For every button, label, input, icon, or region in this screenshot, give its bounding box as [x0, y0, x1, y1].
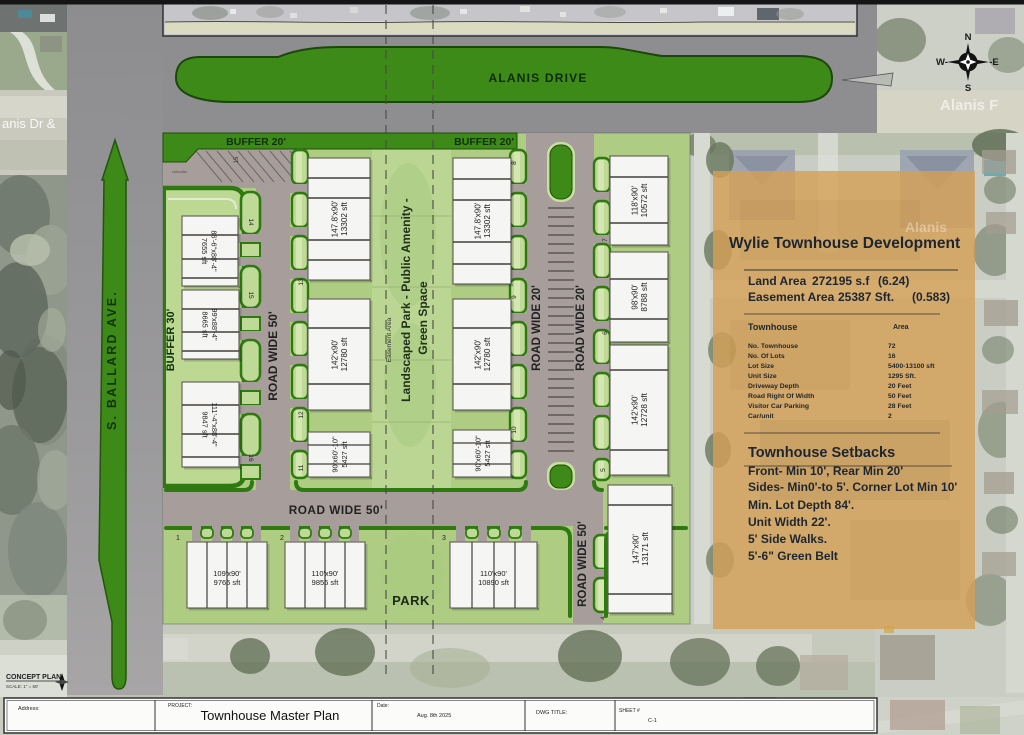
svg-text:13302 sft: 13302 sft — [483, 203, 492, 237]
svg-text:C-1: C-1 — [648, 718, 657, 724]
svg-text:ROAD WIDE 50': ROAD WIDE 50' — [289, 503, 384, 517]
svg-text:15: 15 — [247, 291, 254, 299]
svg-text:9847 sft: 9847 sft — [201, 411, 210, 437]
svg-text:13: 13 — [298, 278, 305, 286]
svg-text:Land Area: Land Area — [748, 274, 807, 288]
svg-text:(0.583): (0.583) — [912, 290, 950, 304]
svg-text:ROAD WIDE 20': ROAD WIDE 20' — [575, 285, 587, 371]
svg-text:Sides- Min0'-to 5'. Corner: Sides- Min0'-to 5'. Corner Lot Min 10' — [748, 480, 957, 494]
svg-text:16: 16 — [247, 454, 254, 462]
svg-text:20 Feet: 20 Feet — [888, 383, 912, 390]
svg-text:5' Side Walks.: 5' Side Walks. — [748, 532, 827, 546]
svg-text:ALANIS DRIVE: ALANIS DRIVE — [488, 71, 587, 85]
svg-text:9766 sft: 9766 sft — [214, 578, 242, 587]
svg-text:Alanis: Alanis — [905, 219, 947, 235]
svg-text:5'-6" Green Belt: 5'-6" Green Belt — [748, 549, 838, 563]
svg-text:12780 sft: 12780 sft — [340, 337, 349, 371]
svg-text:DWG TITLE:: DWG TITLE: — [536, 710, 568, 716]
svg-text:Green Space: Green Space — [416, 281, 430, 355]
svg-text:(6.24): (6.24) — [878, 274, 909, 288]
svg-text:8788 sft: 8788 sft — [640, 282, 649, 312]
svg-text:3: 3 — [442, 535, 446, 542]
svg-text:Visitor Car Parking: Visitor Car Parking — [748, 403, 809, 410]
svg-text:Townhouse: Townhouse — [748, 322, 797, 332]
svg-text:12: 12 — [298, 411, 305, 419]
svg-text:9: 9 — [511, 295, 518, 299]
svg-text:No. Of Lots: No. Of Lots — [748, 353, 785, 360]
svg-text:110'x90': 110'x90' — [312, 569, 339, 578]
svg-text:12728 sft: 12728 sft — [640, 392, 649, 426]
svg-text:142'x90': 142'x90' — [631, 395, 640, 425]
svg-text:Area: Area — [893, 324, 909, 331]
svg-text:anis Dr &: anis Dr & — [2, 116, 56, 131]
svg-text:1295 Sft.: 1295 Sft. — [888, 373, 916, 380]
svg-text:13171 sft: 13171 sft — [641, 531, 650, 565]
svg-text:S: S — [965, 83, 971, 94]
svg-text:111'-4"x88'-4": 111'-4"x88'-4" — [210, 402, 219, 447]
svg-text:ROAD WIDE 50': ROAD WIDE 50' — [266, 311, 280, 401]
svg-text:BUFFER 20': BUFFER 20' — [226, 136, 286, 148]
svg-text:Unit Width 22'.: Unit Width 22'. — [748, 515, 831, 529]
svg-text:147.8'x90': 147.8'x90' — [331, 200, 340, 237]
svg-text:Alanis F: Alanis F — [940, 97, 998, 114]
svg-text:Lot Size: Lot Size — [748, 363, 774, 370]
svg-text:No. Townhouse: No. Townhouse — [748, 343, 798, 350]
svg-text:W-: W- — [936, 57, 948, 68]
svg-text:2: 2 — [888, 413, 892, 420]
svg-text:8665 sft: 8665 sft — [201, 311, 210, 337]
svg-text:10890 sft: 10890 sft — [478, 578, 510, 587]
svg-text:5: 5 — [600, 468, 607, 472]
svg-text:8: 8 — [511, 161, 518, 165]
svg-text:-E: -E — [989, 57, 999, 68]
svg-text:Road Right Of Width: Road Right Of Width — [748, 393, 814, 400]
svg-text:Aug. 8th 2025: Aug. 8th 2025 — [417, 713, 451, 719]
svg-text:BUFFER 30': BUFFER 30' — [165, 308, 177, 371]
svg-text:PROJECT:: PROJECT: — [168, 703, 192, 709]
svg-text:109'x90': 109'x90' — [213, 569, 241, 578]
svg-text:Wylie Townhouse Development: Wylie Townhouse Development — [729, 235, 960, 252]
svg-text:10: 10 — [511, 426, 518, 434]
svg-text:147'x90': 147'x90' — [632, 534, 641, 564]
svg-text:142'x90': 142'x90' — [331, 339, 340, 369]
svg-text:SCALE: 1" = 60': SCALE: 1" = 60' — [6, 684, 38, 689]
svg-text:SHEET #: SHEET # — [619, 708, 640, 714]
svg-text:15: 15 — [234, 156, 240, 163]
svg-text:Landscaped Park - Public Ameni: Landscaped Park - Public Amenity - — [399, 198, 413, 402]
svg-text:99'x88'-4": 99'x88'-4" — [210, 308, 219, 341]
svg-text:Min. Lot Depth 84'.: Min. Lot Depth 84'. — [748, 498, 854, 512]
svg-text:Easement Area: Easement Area — [386, 317, 393, 362]
svg-text:ROAD WIDE 20': ROAD WIDE 20' — [531, 285, 543, 371]
svg-text:7: 7 — [602, 238, 609, 242]
svg-text:sidewalks: sidewalks — [172, 170, 187, 174]
svg-text:4: 4 — [600, 616, 607, 620]
svg-text:2: 2 — [280, 535, 284, 542]
svg-text:5400-13100 sft: 5400-13100 sft — [888, 363, 935, 370]
svg-text:50 Feet: 50 Feet — [888, 393, 912, 400]
svg-text:5427 sft: 5427 sft — [340, 441, 349, 467]
svg-text:11: 11 — [298, 464, 305, 471]
svg-text:S. BALLARD AVE.: S. BALLARD AVE. — [105, 290, 119, 430]
svg-text:90'x60'-10": 90'x60'-10" — [474, 435, 483, 472]
svg-text:90'x60'-10": 90'x60'-10" — [331, 436, 340, 473]
svg-text:Unit Size: Unit Size — [748, 373, 777, 380]
svg-text:25387 Sft.: 25387 Sft. — [838, 290, 894, 304]
svg-text:16: 16 — [888, 353, 896, 360]
svg-text:118'x90': 118'x90' — [631, 185, 640, 215]
svg-text:Townhouse Setbacks: Townhouse Setbacks — [748, 445, 895, 461]
svg-text:14: 14 — [247, 218, 254, 226]
svg-text:6: 6 — [602, 331, 609, 335]
svg-text:N: N — [965, 32, 972, 43]
svg-text:Address:: Address: — [18, 706, 40, 712]
svg-text:Date:: Date: — [377, 703, 389, 709]
svg-text:Front- Min 10', Rear Min 20': Front- Min 10', Rear Min 20' — [748, 464, 903, 478]
svg-text:9856 sft: 9856 sft — [312, 578, 340, 587]
svg-text:142'x90': 142'x90' — [474, 339, 483, 369]
svg-text:ROAD WIDE 50': ROAD WIDE 50' — [577, 521, 589, 607]
svg-text:12780 sft: 12780 sft — [483, 337, 492, 371]
svg-text:PARK: PARK — [392, 593, 430, 608]
svg-text:147.8'x90': 147.8'x90' — [474, 202, 483, 239]
svg-text:Driveway Depth: Driveway Depth — [748, 383, 799, 390]
svg-text:Townhouse Master Plan: Townhouse Master Plan — [201, 708, 340, 723]
svg-text:BUFFER 20': BUFFER 20' — [454, 136, 514, 148]
svg-text:110'x90': 110'x90' — [480, 569, 507, 578]
svg-text:Easement Area: Easement Area — [748, 290, 835, 304]
svg-text:CONCEPT PLAN: CONCEPT PLAN — [6, 674, 61, 681]
svg-text:13302 sft: 13302 sft — [340, 201, 349, 235]
svg-text:Car/unit: Car/unit — [748, 413, 774, 420]
svg-text:272195 s.f: 272195 s.f — [812, 274, 870, 288]
svg-text:10572 sft: 10572 sft — [640, 183, 649, 217]
svg-text:5427 sft: 5427 sft — [483, 440, 492, 466]
svg-text:72: 72 — [888, 343, 896, 350]
svg-text:98'x90': 98'x90' — [631, 284, 640, 310]
svg-text:1: 1 — [176, 535, 180, 542]
svg-text:7655 sft: 7655 sft — [200, 238, 209, 264]
svg-text:28 Feet: 28 Feet — [888, 403, 912, 410]
svg-text:86'-6"x88'-4": 86'-6"x88'-4" — [210, 230, 219, 272]
